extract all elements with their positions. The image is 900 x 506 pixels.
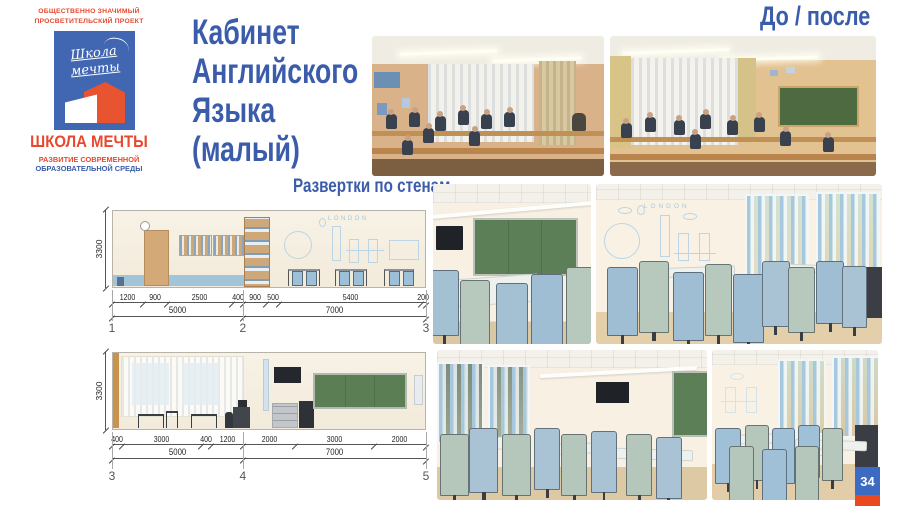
page-number-badge: 34	[855, 467, 880, 495]
teacher-cabinet	[272, 403, 298, 428]
chair	[534, 428, 560, 490]
student	[780, 131, 791, 146]
chair	[306, 271, 317, 286]
page-title: Кабинет Английского Языка (малый)	[192, 13, 358, 169]
bridge-deck	[721, 401, 756, 402]
student	[435, 116, 446, 131]
chair	[502, 434, 531, 496]
segment-dimensions: 120090025004009005005400200	[112, 290, 426, 303]
logo-building-wall	[65, 92, 97, 123]
wall-poster	[770, 70, 778, 76]
axis-marker: 3	[423, 321, 430, 335]
chair	[842, 266, 867, 329]
ceiling-light	[400, 50, 497, 56]
office-chair	[225, 412, 233, 428]
whiteboard	[414, 375, 423, 405]
chair	[822, 428, 844, 481]
bookshelf	[244, 217, 270, 287]
vertical-blinds	[780, 361, 823, 433]
chair	[433, 270, 459, 336]
extension-line	[426, 432, 427, 469]
balloon-icon	[319, 218, 326, 227]
student	[402, 140, 413, 155]
student	[386, 114, 397, 129]
elevation-drawing-1: 3300 LONDON	[92, 210, 426, 335]
chair	[673, 272, 704, 341]
cloud-icon	[730, 373, 744, 380]
dimension-segment: 1200	[211, 432, 242, 445]
window-pane	[132, 363, 169, 405]
dimension-segment: 7000	[243, 303, 426, 317]
chair	[339, 271, 350, 286]
chair	[762, 449, 787, 500]
chair	[403, 271, 414, 286]
chair	[733, 274, 764, 343]
dimension-segment: 7000	[243, 445, 426, 459]
student	[823, 137, 834, 152]
bridge-tower-icon	[699, 233, 710, 261]
bridge-deck	[346, 250, 384, 251]
desk-row	[610, 137, 876, 142]
axis-marker: 3	[109, 469, 116, 483]
monitor	[238, 400, 247, 407]
student	[423, 128, 434, 143]
chair	[591, 431, 617, 493]
extension-line	[243, 432, 244, 469]
logo-tagline-line1: РАЗВИТИЕ СОВРЕМЕННОЙ	[8, 155, 170, 164]
dimension-block: 120090025004009005005400200 50007000 123	[112, 288, 426, 335]
desk-silhouette	[191, 414, 217, 428]
before-photo-left	[372, 36, 604, 176]
logo-project-label: ОБЩЕСТВЕННО ЗНАЧИМЫЙ ПРОСВЕТИТЕЛЬСКИЙ ПР…	[8, 7, 170, 26]
wall-poster	[786, 67, 795, 73]
student	[674, 120, 685, 135]
wall-poster	[402, 98, 410, 108]
total-dimensions: 50007000	[112, 303, 426, 317]
student	[690, 134, 701, 149]
student	[727, 120, 738, 135]
window	[778, 359, 825, 435]
cloud-icon	[683, 213, 697, 220]
dimension-segment: 3000	[122, 432, 201, 445]
student	[409, 112, 420, 127]
logo-name: ШКОЛА МЕЧТЫ	[18, 132, 161, 152]
dimension-segment: 500	[266, 290, 279, 303]
bridge-tower-icon	[349, 239, 359, 263]
bridge-tower-icon	[746, 387, 757, 413]
mural-text: LONDON	[328, 216, 369, 222]
logo-project-line1: ОБЩЕСТВЕННО ЗНАЧИМЫЙ	[8, 7, 170, 17]
axis-markers: 123	[112, 317, 426, 335]
height-dimension: 3300	[92, 210, 112, 288]
chalkboard	[473, 218, 578, 276]
computer-desk	[233, 407, 250, 428]
student	[458, 110, 469, 125]
door-edge	[113, 353, 119, 428]
student	[700, 114, 711, 129]
chair	[389, 271, 400, 286]
dimension-segment: 5000	[112, 445, 243, 459]
render-photo-board	[433, 184, 591, 344]
chair	[607, 267, 638, 336]
elevation-wall-3-5	[112, 352, 426, 430]
tv-screen	[596, 382, 628, 403]
chair	[460, 280, 490, 344]
logo-banner: Школа мечты	[54, 31, 135, 130]
axis-marker: 5	[423, 469, 430, 483]
balloon-icon	[637, 205, 645, 215]
chair	[440, 434, 469, 496]
slide: ОБЩЕСТВЕННО ЗНАЧИМЫЙ ПРОСВЕТИТЕЛЬСКИЙ ПР…	[0, 0, 900, 506]
student	[481, 114, 492, 129]
axis-marker: 2	[239, 321, 246, 335]
london-mural: LONDON	[275, 214, 422, 274]
wall-shelf	[213, 235, 246, 256]
tv-screen	[274, 367, 301, 383]
bridge-deck	[674, 253, 716, 254]
chair	[795, 446, 819, 500]
london-mural	[715, 371, 765, 425]
wall-poster	[374, 72, 400, 88]
bridge-tower-icon	[368, 239, 378, 263]
dimension-block: 40030004001200200030002000 50007000 345	[112, 430, 426, 483]
chair	[561, 434, 587, 496]
wainscot	[113, 275, 263, 286]
chair-silhouette	[166, 411, 178, 428]
student	[621, 123, 632, 138]
ceiling-light	[623, 48, 729, 55]
extension-line	[243, 290, 244, 321]
door	[144, 230, 169, 286]
elevation-wall-1-3: LONDON	[112, 210, 426, 288]
ferris-wheel-icon	[604, 223, 640, 259]
page-number-badge-accent	[855, 495, 880, 506]
render-photo-classroom	[437, 350, 707, 500]
student	[504, 112, 515, 127]
extension-line	[426, 290, 427, 321]
mural-text: LONDON	[644, 203, 690, 210]
cloud-icon	[618, 207, 632, 214]
big-ben-icon	[332, 226, 341, 261]
student	[469, 131, 480, 146]
chair	[353, 271, 364, 286]
chair	[566, 267, 591, 344]
flipboard	[263, 359, 269, 411]
chair	[531, 274, 563, 344]
desk-silhouette	[138, 414, 164, 428]
big-ben-icon	[660, 215, 670, 257]
dimension-segment: 3000	[295, 432, 374, 445]
dimension-segment: 2000	[374, 432, 426, 445]
elevations-label: Развертки по стенам	[293, 176, 421, 198]
dimension-segment: 5000	[112, 303, 243, 317]
chair	[788, 267, 816, 333]
buildings-icon	[389, 240, 419, 260]
chair	[639, 261, 670, 333]
dimension-segment: 900	[243, 290, 267, 303]
teacher	[572, 113, 586, 131]
before-after-label: До / после	[760, 1, 864, 32]
extension-line	[112, 432, 113, 469]
student	[754, 117, 765, 132]
wall-clock	[140, 221, 150, 231]
chair	[469, 428, 498, 493]
logo-project-line2: ПРОСВЕТИТЕЛЬСКИЙ ПРОЕКТ	[8, 17, 170, 27]
bin	[117, 277, 124, 286]
axis-marker: 4	[239, 469, 246, 483]
dimension-segment: 400	[112, 432, 122, 445]
chair	[705, 264, 733, 336]
extension-line	[112, 290, 113, 321]
window-pane	[182, 363, 219, 405]
dimension-segment: 2500	[167, 290, 232, 303]
ceiling	[433, 184, 591, 203]
axis-markers: 345	[112, 459, 426, 483]
wall-poster	[377, 103, 387, 115]
logo-tagline-line2: ОБРАЗОВАТЕЛЬНОЙ СРЕДЫ	[8, 164, 170, 173]
chair	[496, 283, 528, 344]
chair	[762, 261, 790, 327]
bridge-tower-icon	[678, 233, 689, 261]
dimension-segment: 900	[143, 290, 167, 303]
dimension-segment: 2000	[243, 432, 295, 445]
desk-row	[610, 154, 876, 160]
dark-cabinet	[299, 401, 314, 428]
chalkboard	[672, 371, 707, 437]
chair	[816, 261, 844, 324]
logo-script-text: Школа мечты	[53, 42, 137, 83]
bridge-tower-icon	[725, 387, 736, 413]
chair	[656, 437, 682, 499]
dimension-segment: 1200	[112, 290, 143, 303]
chair	[729, 446, 754, 500]
chair	[626, 434, 652, 496]
tv-screen	[436, 226, 463, 250]
light-ledge	[433, 201, 591, 219]
axis-marker: 1	[109, 321, 116, 335]
total-dimensions: 50007000	[112, 445, 426, 459]
render-photo-mural: LONDON	[596, 184, 882, 344]
dimension-segment: 5400	[279, 290, 420, 303]
height-dimension: 3300	[92, 352, 112, 430]
segment-dimensions: 40030004001200200030002000	[112, 432, 426, 445]
dimension-segment: 400	[232, 290, 242, 303]
dimension-segment: 400	[201, 432, 211, 445]
elevation-drawing-2: 3300	[92, 352, 426, 483]
student	[645, 117, 656, 132]
chalkboard	[313, 373, 407, 409]
chair	[292, 271, 303, 286]
wall-shelf	[179, 235, 212, 256]
before-photo-right	[610, 36, 876, 176]
chalkboard	[778, 86, 859, 126]
render-photo-rows	[712, 350, 878, 500]
ferris-wheel-icon	[284, 231, 312, 259]
